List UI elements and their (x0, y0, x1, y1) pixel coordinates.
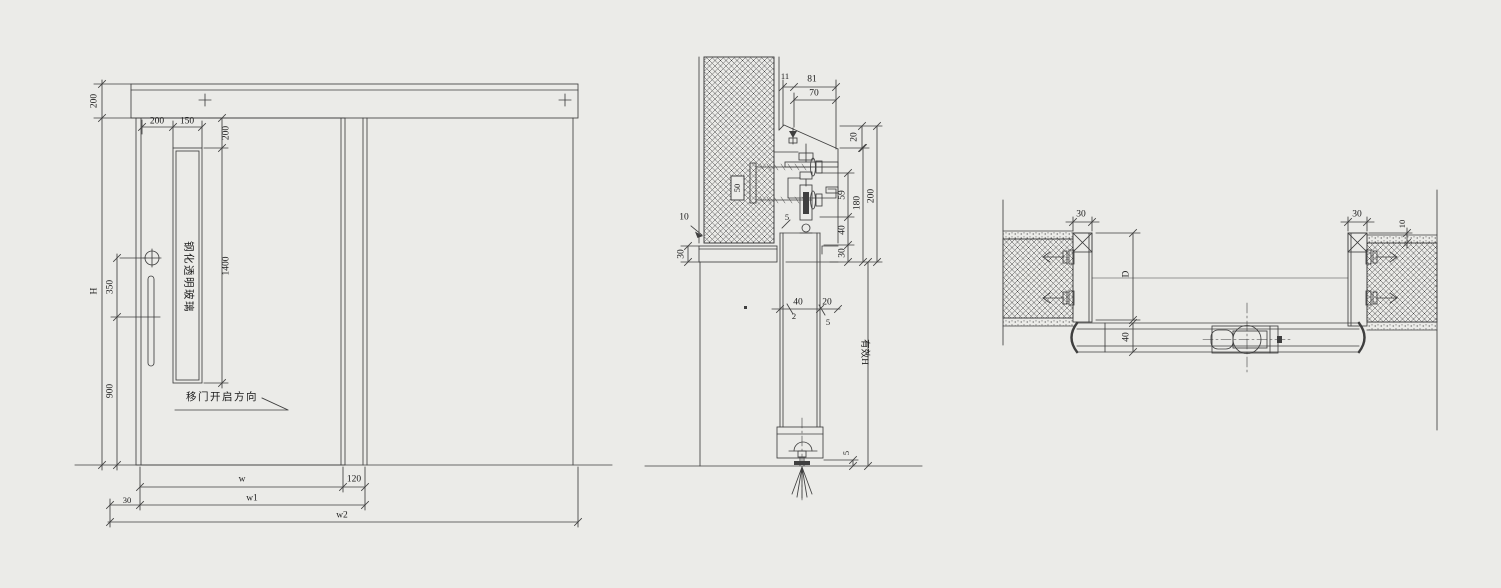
dim-soffit-height: 30 (677, 249, 687, 259)
dim-cover-total: 81 (807, 75, 817, 85)
dim-cover-width: 70 (809, 89, 819, 99)
dim-top-gap: 5 (785, 213, 789, 222)
dim-rear-gap: 20 (822, 298, 832, 308)
dim-lock-spacing: 350 (106, 280, 116, 294)
dim-glass-width: 150 (180, 117, 194, 127)
dim-glass-height: 1400 (222, 257, 232, 276)
dim-hanger-height: 59 (838, 190, 848, 200)
dim-cover-lip: 11 (781, 72, 789, 81)
dim-width-w1: w1 (246, 494, 258, 504)
glass-type-label: 钢化透明玻璃 (182, 241, 193, 313)
dim-pocket-depth: D (1122, 271, 1132, 278)
dim-track-height: 30 (838, 248, 848, 258)
dim-floor-clearance: 5 (842, 451, 851, 455)
dim-overlap: 120 (347, 475, 361, 485)
plan-view (1003, 190, 1437, 430)
dim-assembly-inner: 180 (853, 196, 863, 210)
dim-leaf-thickness: 40 (793, 298, 803, 308)
dim-effective-height: 有效H (858, 339, 868, 365)
dim-handle-height: 900 (106, 384, 116, 398)
elevation-view (75, 80, 612, 527)
dim-cover-height: 20 (850, 132, 860, 142)
linework (0, 0, 1501, 588)
dim-glass-top-offset: 200 (222, 126, 232, 140)
open-direction-label: 移门开启方向 (186, 393, 258, 404)
dim-width-w2: w2 (336, 511, 348, 521)
dim-jamb-projection: 10 (1398, 220, 1407, 229)
dim-leaf-width: w (239, 475, 246, 485)
dim-seal-gap: 5 (826, 318, 830, 327)
dim-roller-gap: 40 (838, 225, 848, 235)
cad-drawing-canvas: 200 H 350 900 200 150 200 1400 钢化透明玻璃 移门… (0, 0, 1501, 588)
dim-edge-overlap: 30 (123, 496, 132, 505)
dim-stile-width: 200 (150, 117, 164, 127)
dim-right-jamb-width: 30 (1352, 210, 1362, 220)
dim-overall-height: H (90, 288, 100, 295)
dim-plan-leaf-thickness: 40 (1122, 332, 1132, 342)
dim-left-jamb-width: 30 (1076, 210, 1086, 220)
dim-header-height: 200 (90, 94, 100, 108)
dim-assembly-total: 200 (867, 189, 877, 203)
section-view (645, 57, 922, 500)
dim-anchor-depth: 50 (733, 184, 742, 193)
dim-wall-gap: 10 (679, 213, 689, 223)
dim-glass-thickness: 2 (792, 312, 796, 321)
